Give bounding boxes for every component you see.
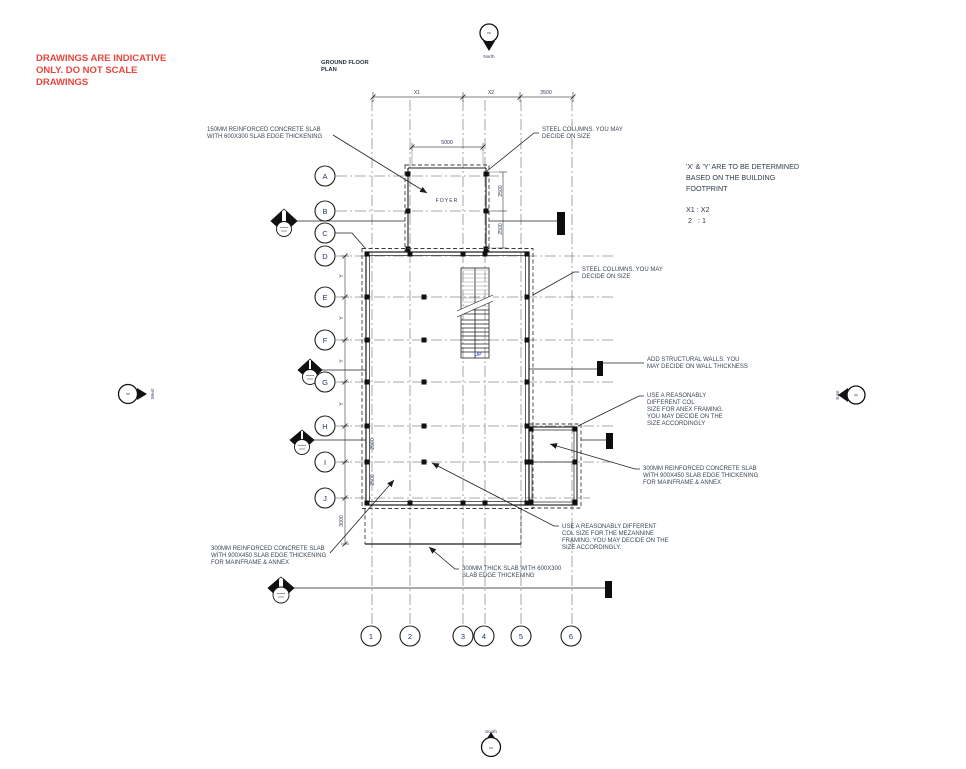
dim-j-edge: 3000 xyxy=(339,515,345,527)
annotation-anex-columns: USE A REASONABLY DIFFERENT COL SIZE FOR … xyxy=(647,393,724,427)
dim-y3: Y xyxy=(339,359,345,363)
row-bubbles: A B C D E F G H I J xyxy=(315,166,335,508)
north-label: North xyxy=(483,54,495,59)
annotation-slab300-right: 300MM REINFORCED CONCRETE SLAB WITH 900X… xyxy=(643,466,759,486)
title-line: PLAN xyxy=(321,67,337,73)
row-bubble-j: J xyxy=(323,494,327,503)
col-bubble-5: 5 xyxy=(519,632,523,641)
bottom-slab xyxy=(365,509,521,544)
annotation-line: SLAB EDGE THICKENING xyxy=(462,573,535,579)
footprint-note: 'X' & 'Y' ARE TO BE DETERMINED BASED ON … xyxy=(686,162,799,225)
annotation-line: DECIDE ON SIZE xyxy=(542,134,590,140)
dim-y2: Y xyxy=(339,316,345,320)
annotation-line: MAY DECIDE ON WALL THICKNESS xyxy=(647,364,748,370)
annotation-line: DECIDE ON SIZE xyxy=(582,274,630,280)
row-bubble-g: G xyxy=(322,378,328,387)
annotation-line: ADD STRUCTURAL WALLS. YOU xyxy=(647,357,739,363)
ratio-line: X1 : X2 xyxy=(686,205,710,214)
dim-foyer-lower: 2500 xyxy=(498,223,504,235)
dim-x1: X1 xyxy=(414,90,420,96)
stair: UP xyxy=(457,268,493,358)
row-bubble-c: C xyxy=(322,229,328,238)
disclaimer-line: DRAWINGS xyxy=(36,77,88,88)
foyer-plan: FOYER 5000 2500 2500 xyxy=(405,140,507,252)
foyer-label: FOYER xyxy=(436,198,459,204)
row-bubble-b: B xyxy=(322,207,327,216)
col-bubble-6: 6 xyxy=(569,632,573,641)
disclaimer-line: ONLY. DO NOT SCALE xyxy=(36,65,138,76)
dim-x2: X2 xyxy=(488,90,494,96)
compass-west: West xyxy=(119,385,156,404)
annotation-slab-bottom: 300MM THICK SLAB WITH 600X300 SLAB EDGE … xyxy=(462,566,562,579)
stair-up-label: UP xyxy=(475,352,483,358)
col-bubble-2: 2 xyxy=(408,632,412,641)
annotation-line: STEEL COLUMNS. YOU MAY xyxy=(582,267,663,273)
section-flag-1 xyxy=(557,212,565,235)
top-dimension: X1 X2 3500 xyxy=(371,90,576,102)
compass-east: East xyxy=(835,386,865,404)
annotation-steel-cols-top: STEEL COLUMNS. YOU MAY DECIDE ON SIZE xyxy=(542,127,623,140)
dim-5000: 5000 xyxy=(441,140,453,146)
main-building xyxy=(362,249,533,509)
drawing-sheet: X1 X2 3500 FOYER 5000 2500 2500 xyxy=(0,0,966,769)
row-bubble-a: A xyxy=(322,172,327,181)
dim-y1: Y xyxy=(339,274,345,278)
note-line: FOOTPRINT xyxy=(686,184,728,193)
section-flag-3 xyxy=(606,433,613,449)
annotation-line: STEEL COLUMNS. YOU MAY xyxy=(542,127,623,133)
annotation-slab300-left: 300MM REINFORCED CONCRETE SLAB WITH 900X… xyxy=(211,546,327,566)
row-bubble-d: D xyxy=(322,252,328,261)
dim-3500: 3500 xyxy=(540,90,552,96)
disclaimer-line: DRAWINGS ARE INDICATIVE xyxy=(36,53,166,64)
row-bubble-f: F xyxy=(323,336,328,345)
col-bubble-4: 4 xyxy=(482,632,486,641)
annotation-structural-walls: ADD STRUCTURAL WALLS. YOU MAY DECIDE ON … xyxy=(647,357,748,370)
annotation-slab150: 150MM REINFORCED CONCRETE SLAB WITH 600X… xyxy=(207,127,323,140)
annotation-line: FRAMING. YOU MAY DECIDE ON THE xyxy=(562,538,669,544)
note-line: BASED ON THE BUILDING xyxy=(686,173,776,182)
annotation-line: SIZE ACCORDINGLY. xyxy=(562,545,621,551)
annotation-line: USE A REASONABLY DIFFERENT xyxy=(562,524,657,530)
annotation-line: 300MM REINFORCED CONCRETE SLAB xyxy=(643,466,757,472)
annotation-line: USE A REASONABLY xyxy=(647,393,706,399)
disclaimer-note: DRAWINGS ARE INDICATIVE ONLY. DO NOT SCA… xyxy=(36,53,166,88)
sheet-title: GROUND FLOOR PLAN xyxy=(321,60,369,73)
row-bubble-e: E xyxy=(322,293,327,302)
annotation-line: COL SIZE FOR THE MEZANNINE xyxy=(562,531,654,537)
col-bubble-3: 3 xyxy=(461,632,465,641)
compass-north: North xyxy=(480,24,498,59)
annex xyxy=(529,424,582,508)
title-line: GROUND FLOOR xyxy=(321,60,369,66)
ratio-line: 2 : 1 xyxy=(688,216,706,225)
section-marker-4 xyxy=(268,577,294,603)
annotation-line: 300MM REINFORCED CONCRETE SLAB xyxy=(211,546,325,552)
section-marker-1 xyxy=(271,209,297,237)
row-bubble-h: H xyxy=(322,422,327,431)
compass-south: South xyxy=(482,729,501,757)
col-bubbles: 1 2 3 4 5 6 xyxy=(361,626,581,646)
annotation-line: FOR MAINFRAME & ANNEX xyxy=(643,480,721,486)
annotation-mezzanine: USE A REASONABLY DIFFERENT COL SIZE FOR … xyxy=(562,524,669,551)
dim-i-j: 2500 xyxy=(370,474,376,486)
annotation-line: WITH 900X450 SLAB EDGE THICKENING xyxy=(211,553,327,559)
west-label: West xyxy=(150,388,155,399)
annotation-line: FOR MAINFRAME & ANNEX xyxy=(211,560,289,566)
left-dimension: Y Y Y Y 2500 2500 3000 xyxy=(339,254,376,547)
annotation-line: 300MM THICK SLAB WITH 600X300 xyxy=(462,566,562,572)
annotation-line: SIZE FOR ANEX FRAMING. xyxy=(647,407,724,413)
floor-plan-svg: X1 X2 3500 FOYER 5000 2500 2500 xyxy=(0,0,966,769)
annotation-line: 150MM REINFORCED CONCRETE SLAB xyxy=(207,127,321,133)
section-marker-3 xyxy=(290,430,314,455)
col-bubble-1: 1 xyxy=(369,632,373,641)
dim-foyer-upper: 2500 xyxy=(498,185,504,197)
annotation-line: WITH 600X300 SLAB EDGE THICKENING xyxy=(207,134,323,140)
section-flag-4 xyxy=(605,581,612,598)
note-line: 'X' & 'Y' ARE TO BE DETERMINED xyxy=(686,162,799,171)
south-icon xyxy=(482,738,501,757)
annotation-line: SIZE ACCORDINGLY xyxy=(647,421,705,427)
row-bubble-i: I xyxy=(324,458,326,467)
annotation-steel-cols-mid: STEEL COLUMNS. YOU MAY DECIDE ON SIZE xyxy=(582,267,663,280)
dim-y4: Y xyxy=(339,402,345,406)
section-flag-2 xyxy=(597,361,603,376)
annotation-line: YOU MAY DECIDE ON THE xyxy=(647,414,723,420)
annotation-line: DIFFERENT COL xyxy=(647,400,695,406)
annotation-line: WITH 900X450 SLAB EDGE THICKENING xyxy=(643,473,759,479)
dim-h-i: 2500 xyxy=(370,438,376,450)
